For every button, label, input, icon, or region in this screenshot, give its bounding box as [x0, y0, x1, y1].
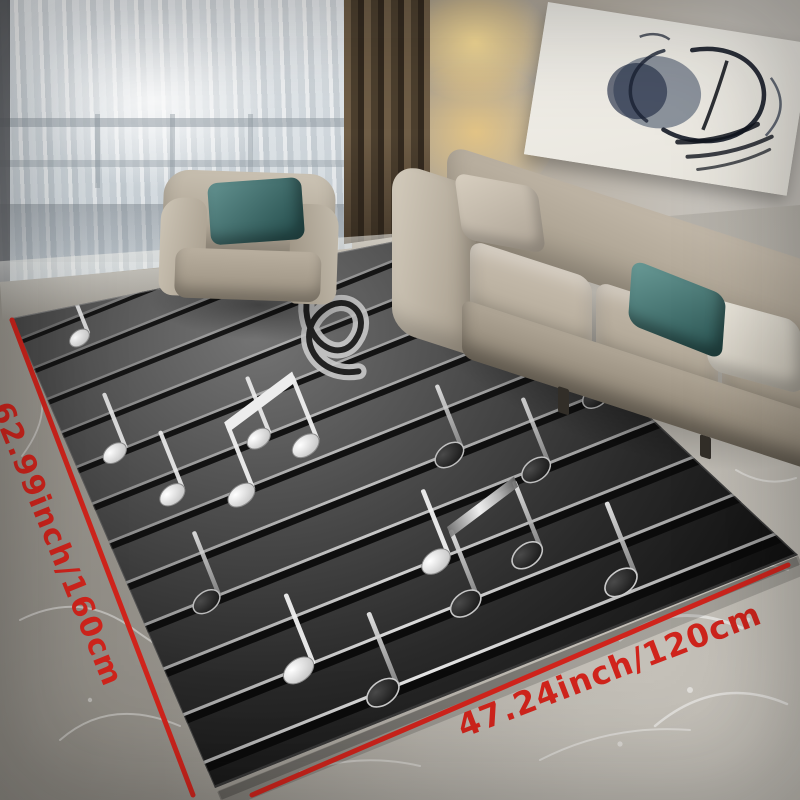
width-dimension-line — [252, 565, 788, 795]
length-dimension-line — [12, 320, 193, 795]
product-photo-music-rug: 62.99inch/160cm 47.24inch/120cm — [0, 0, 800, 800]
